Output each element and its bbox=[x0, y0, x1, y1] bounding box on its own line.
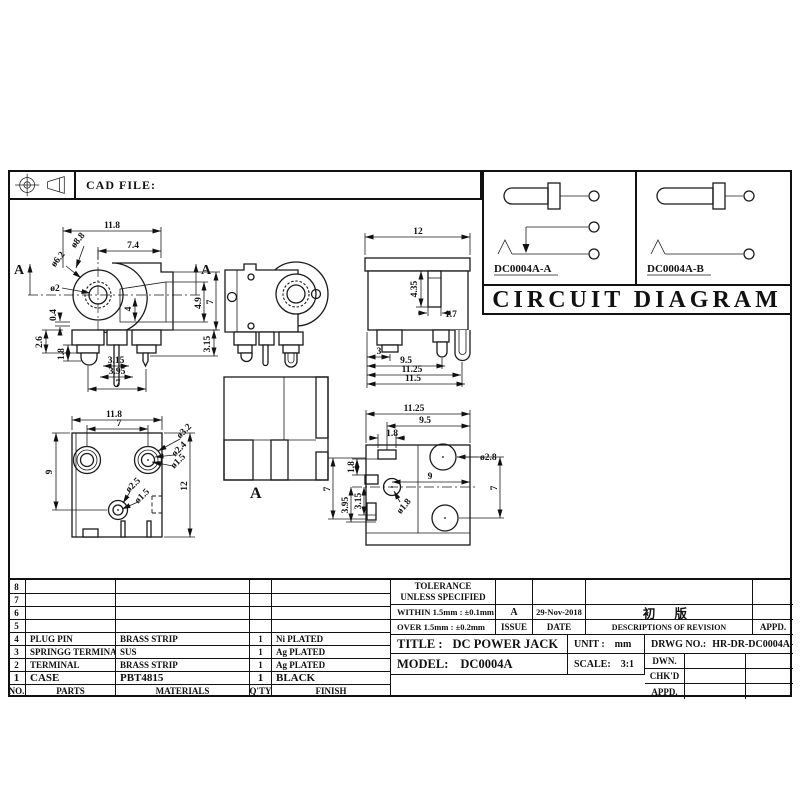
side-view: 12 4.35 1.7 3 9.5 11.25 11.5 bbox=[365, 227, 470, 388]
date-empty-cell bbox=[533, 580, 586, 605]
dim-pcb-l4: 7 bbox=[323, 486, 333, 491]
dim-front-d3: ø2 bbox=[50, 284, 60, 294]
drwg-cell: DRWG NO.: HR-DR-DC0004A-00 bbox=[645, 635, 793, 654]
parts-row-name bbox=[26, 593, 116, 606]
model-value: DC0004A bbox=[460, 657, 512, 672]
dim-front-h1: 4.9 bbox=[194, 297, 204, 309]
drwg-value: HR-DR-DC0004A-00 bbox=[712, 639, 793, 650]
dim-pcb-mid: 9 bbox=[428, 472, 433, 482]
appd-sign-cell bbox=[685, 684, 746, 699]
parts-row-finish bbox=[272, 580, 390, 593]
dwn-sign-cell bbox=[685, 654, 746, 669]
appd-label: APPD. bbox=[753, 620, 793, 635]
dim-side-b4: 11.5 bbox=[405, 374, 421, 384]
date-value: 29-Nov-2018 bbox=[533, 605, 586, 620]
dim-side-slot-w: 1.7 bbox=[445, 310, 457, 320]
unit-value: mm bbox=[615, 639, 632, 650]
parts-row-name bbox=[26, 606, 116, 619]
tolerance-header: TOLERANCE UNLESS SPECIFIED bbox=[391, 580, 496, 605]
chkd-label: CHK'D bbox=[645, 669, 685, 684]
dim-pcb-w3: 1.8 bbox=[386, 429, 398, 439]
model-row: MODEL: DC0004A bbox=[391, 654, 568, 675]
parts-row-material: BRASS STRIP bbox=[116, 632, 250, 645]
parts-header-materials: MATERIALS bbox=[116, 684, 250, 697]
parts-row-no: 4 bbox=[8, 632, 26, 645]
front-view: A A 11.8 7.4 ø8.8 ø6.2 ø2 4.9 bbox=[14, 221, 220, 392]
parts-row-qty bbox=[250, 580, 272, 593]
parts-header-qty: Q'TY bbox=[250, 684, 272, 697]
parts-row-material: SUS bbox=[116, 645, 250, 658]
unit-cell: UNIT : mm bbox=[568, 635, 645, 654]
dim-side-b1: 3 bbox=[377, 347, 382, 357]
parts-header-finish: FINISH bbox=[272, 684, 390, 697]
tolerance-line2: UNLESS SPECIFIED bbox=[400, 592, 485, 603]
dim-front-width: 11.8 bbox=[104, 221, 120, 231]
parts-row-no: 1 bbox=[8, 671, 26, 684]
dim-bottom-d1: ø3.2 bbox=[175, 422, 194, 441]
parts-row-qty: 1 bbox=[250, 658, 272, 671]
parts-header-parts: PARTS bbox=[26, 684, 116, 697]
appd-empty-cell bbox=[753, 580, 793, 605]
parts-header-no: NO. bbox=[8, 684, 26, 697]
scale-label: SCALE: bbox=[574, 659, 611, 670]
parts-row-name bbox=[26, 580, 116, 593]
parts-row-no: 7 bbox=[8, 593, 26, 606]
pcb-layout-view: 11.25 9.5 1.8 ø2.8 9 7 ø1.8 1.8 bbox=[323, 404, 504, 545]
parts-row-finish: Ag PLATED bbox=[272, 645, 390, 658]
issue-empty-cell bbox=[496, 580, 533, 605]
dim-front-h3: 4 bbox=[124, 306, 134, 311]
parts-row-finish bbox=[272, 606, 390, 619]
parts-row-material: PBT4815 bbox=[116, 671, 250, 684]
dim-front-l1: 0.4 bbox=[49, 309, 59, 321]
tolerance-over: OVER 1.5mm : ±0.2mm bbox=[391, 620, 496, 635]
issue-label: ISSUE bbox=[496, 620, 533, 635]
appd-value-cell bbox=[753, 605, 793, 620]
dim-front-l3: 1.8 bbox=[57, 348, 67, 360]
scale-value: 3:1 bbox=[621, 659, 634, 670]
tolerance-within: WITHIN 1.5mm : ±0.1mm bbox=[391, 605, 496, 620]
dim-front-d2: ø6.2 bbox=[49, 250, 67, 269]
pictorial-view bbox=[225, 262, 328, 367]
parts-row-no: 8 bbox=[8, 580, 26, 593]
dim-pcb-w2: 9.5 bbox=[419, 416, 431, 426]
revision-label: DESCRIPTIONS OF REVISION bbox=[586, 620, 753, 635]
chkd-date-cell bbox=[746, 669, 793, 684]
parts-row-name: SPRINGG TERMINAL bbox=[26, 645, 116, 658]
parts-row-name: TERMINAL bbox=[26, 658, 116, 671]
dim-pcb-d1: ø2.8 bbox=[480, 453, 497, 463]
bottom-view: 11.8 7 9 12 ø3.2 ø2.4 ø1.5 ø2.5 ø1.5 bbox=[45, 410, 195, 537]
parts-row-material: BRASS STRIP bbox=[116, 658, 250, 671]
parts-row-qty: 1 bbox=[250, 645, 272, 658]
title-value: DC POWER JACK bbox=[453, 637, 559, 652]
appd2-label: APPD. bbox=[645, 684, 685, 699]
revision-value: 初 版 bbox=[586, 605, 753, 620]
dim-side-slot-h: 4.35 bbox=[410, 280, 420, 297]
drawing-sheet: CAD FILE: DC0004A-A bbox=[0, 0, 800, 800]
issue-value: A bbox=[496, 605, 533, 620]
dim-pcb-hr: 7 bbox=[490, 485, 500, 490]
dim-bottom-hl: 9 bbox=[45, 469, 55, 474]
scale-cell: SCALE: 3:1 bbox=[568, 654, 645, 675]
parts-row-material bbox=[116, 619, 250, 632]
dim-front-r1: 3.15 bbox=[203, 335, 213, 352]
parts-row-qty bbox=[250, 619, 272, 632]
dim-pcb-l3: 3.95 bbox=[341, 496, 351, 513]
dim-front-b3: 7 bbox=[116, 379, 121, 389]
title-row: TITLE : DC POWER JACK bbox=[391, 635, 568, 654]
revision-empty-cell bbox=[586, 580, 753, 605]
parts-row-no: 2 bbox=[8, 658, 26, 671]
parts-row-qty bbox=[250, 593, 272, 606]
parts-row-material bbox=[116, 580, 250, 593]
dwn-date-cell bbox=[746, 654, 793, 669]
section-marker-left: A bbox=[14, 263, 25, 278]
title-block: TOLERANCE UNLESS SPECIFIED WITHIN 1.5mm … bbox=[390, 578, 792, 697]
parts-row-name: CASE bbox=[26, 671, 116, 684]
dim-front-l2: 2.6 bbox=[35, 336, 45, 348]
parts-row-no: 6 bbox=[8, 606, 26, 619]
dim-bottom-hr: 12 bbox=[180, 481, 190, 491]
dim-pcb-l2: 3.15 bbox=[354, 492, 364, 509]
parts-row-qty bbox=[250, 606, 272, 619]
parts-row-qty: 1 bbox=[250, 671, 272, 684]
unit-label: UNIT : bbox=[574, 639, 605, 650]
dim-front-b1: 3.15 bbox=[108, 356, 125, 366]
parts-row-finish bbox=[272, 593, 390, 606]
parts-row-no: 5 bbox=[8, 619, 26, 632]
date-label: DATE bbox=[533, 620, 586, 635]
section-view-label: A bbox=[250, 485, 262, 502]
chkd-sign-cell bbox=[685, 669, 746, 684]
parts-row-no: 3 bbox=[8, 645, 26, 658]
parts-row-material bbox=[116, 593, 250, 606]
dim-front-b2: 3.95 bbox=[109, 367, 126, 377]
title-label: TITLE : bbox=[397, 637, 443, 652]
parts-table: 8 7 6 5 4 PLUG PIN BRASS STRIP 1 Ni PLAT… bbox=[8, 578, 390, 697]
dim-front-w2: 7.4 bbox=[127, 241, 139, 251]
parts-row-finish: Ni PLATED bbox=[272, 632, 390, 645]
parts-row-finish: Ag PLATED bbox=[272, 658, 390, 671]
parts-row-finish: BLACK bbox=[272, 671, 390, 684]
parts-row-qty: 1 bbox=[250, 632, 272, 645]
tolerance-line1: TOLERANCE bbox=[415, 581, 472, 592]
dim-pcb-w: 11.25 bbox=[404, 404, 425, 414]
dim-front-h2: 7 bbox=[206, 299, 216, 304]
model-label: MODEL: bbox=[397, 657, 448, 672]
drwg-label: DRWG NO.: bbox=[651, 639, 706, 650]
dim-side-w: 12 bbox=[413, 227, 423, 237]
section-marker-right: A bbox=[201, 263, 212, 278]
parts-row-name: PLUG PIN bbox=[26, 632, 116, 645]
dim-front-d1: ø8.8 bbox=[69, 231, 87, 250]
parts-row-name bbox=[26, 619, 116, 632]
dim-bottom-w2: 7 bbox=[117, 419, 122, 429]
parts-row-material bbox=[116, 606, 250, 619]
appd-date-cell bbox=[746, 684, 793, 699]
section-view-a: A bbox=[224, 377, 328, 502]
notes-empty-row bbox=[391, 675, 645, 699]
parts-row-finish bbox=[272, 619, 390, 632]
dwn-label: DWN. bbox=[645, 654, 685, 669]
dim-pcb-l1: 1.8 bbox=[347, 461, 357, 473]
